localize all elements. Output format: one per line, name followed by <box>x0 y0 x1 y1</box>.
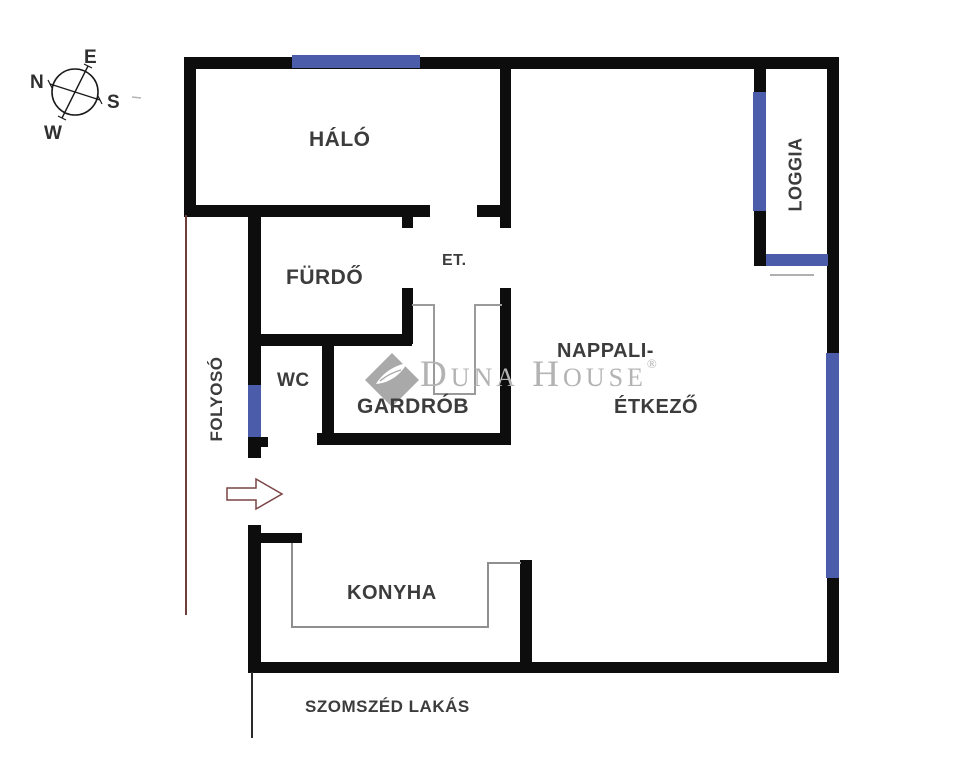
wardrobe-line-top-right <box>474 304 502 306</box>
wall-wc-gardrob <box>322 334 334 445</box>
room-label-nappali: NAPPALI- <box>557 340 654 363</box>
neighbor-boundary-line <box>251 672 253 738</box>
wall-halo-door-stub <box>477 205 511 217</box>
window-folyoso <box>248 385 261 437</box>
room-label-halo: HÁLÓ <box>309 128 371 152</box>
neighbor-apartment-label: SZOMSZÉD LAKÁS <box>305 697 470 717</box>
compass-icon: N E S W <box>20 35 150 150</box>
corridor-boundary-line <box>185 215 187 615</box>
room-label-furdo: FÜRDŐ <box>286 266 363 290</box>
wall-konyha-right <box>520 560 532 672</box>
window-right <box>826 353 839 578</box>
wall-halo-bottom <box>184 205 430 217</box>
window-loggia-bottom <box>766 254 828 266</box>
wall-konyha-top-stub <box>248 533 302 543</box>
counter-line-top <box>487 562 521 564</box>
counter-line-bottom <box>291 626 489 628</box>
compass-south-label: S <box>107 92 120 113</box>
counter-line-right <box>487 562 489 628</box>
room-label-loggia: LOGGIA <box>786 142 807 212</box>
wall-konyha-left <box>248 525 261 672</box>
wardrobe-line-top-left <box>412 304 433 306</box>
wall-halo-right <box>500 57 511 228</box>
room-label-konyha: KONYHA <box>347 582 437 605</box>
wall-furdo-et <box>402 288 413 344</box>
counter-line-left <box>291 543 293 628</box>
wall-loggia-left-lower <box>754 211 766 266</box>
window-loggia-left <box>753 92 766 211</box>
room-label-folyoso: FOLYOSÓ <box>207 356 227 442</box>
room-label-wc: WC <box>277 370 310 392</box>
wall-gardrob-bottom <box>317 433 511 445</box>
wall-bottom <box>248 662 839 673</box>
room-label-gardrob: GARDRÓB <box>357 395 469 419</box>
wall-top <box>184 57 839 69</box>
compass-east-label: E <box>84 47 97 68</box>
room-label-et: ET. <box>442 252 467 270</box>
wall-furdo-left <box>248 213 261 385</box>
wall-loggia-left-upper <box>754 57 766 92</box>
wall-wc-door-stub <box>248 437 268 447</box>
compass-north-label: N <box>30 72 44 93</box>
wall-furdo-et-stub <box>402 213 413 228</box>
wall-left <box>184 57 196 215</box>
entrance-arrow-icon <box>224 475 286 513</box>
floor-plan: N E S W Duna House® HÁLÓ FÜRDŐ ET. WC GA… <box>0 0 964 768</box>
room-label-etkezo: ÉTKEZŐ <box>614 396 698 419</box>
compass-west-label: W <box>44 123 62 144</box>
window-top <box>292 55 420 68</box>
loggia-edge-line <box>770 274 814 276</box>
